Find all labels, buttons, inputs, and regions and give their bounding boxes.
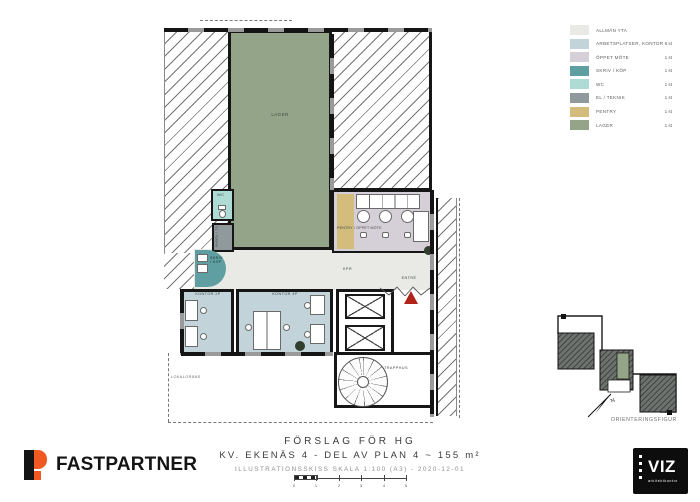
scale-tick-label: 4 [379, 483, 389, 488]
room-lager [228, 30, 332, 250]
wall-east [430, 190, 434, 417]
chair [200, 307, 207, 314]
legend-count: 1 st [665, 123, 672, 128]
fastpartner-p-icon [24, 450, 49, 480]
desk [310, 295, 325, 315]
stool [382, 232, 389, 238]
scale-tick-label: 3 [356, 483, 366, 488]
legend-label: PENTRY [596, 109, 665, 114]
viz-dot [639, 476, 642, 479]
boundary-line-right [459, 198, 460, 418]
legend-count: 1 st [665, 109, 672, 114]
stool [360, 232, 367, 238]
chair [304, 331, 311, 338]
hatched-strip-east [436, 198, 457, 416]
elevator-shaft [345, 325, 385, 351]
viz-subtext: arkitektkontor [648, 479, 678, 483]
scale-tick-label: 5 [401, 483, 411, 488]
drawing-sheet: LAGER PENTRY / ÖPPET MÖTE WC EL / TEKNIK… [0, 0, 700, 502]
legend-row: LAGER 1 st [570, 120, 672, 130]
room-label-lager: LAGER [228, 112, 332, 117]
room-label-kontor-2p: KONTOR 2P [184, 292, 232, 296]
sofa-row [356, 194, 420, 209]
orientation-caption: ORIENTERINGSFIGUR [611, 417, 677, 423]
entrance-arrow-icon [404, 291, 418, 304]
scale-tick [316, 475, 317, 481]
north-arrow-icon [595, 394, 611, 414]
title-line1: FÖRSLAG FÖR HG [0, 436, 700, 447]
fastpartner-wordmark: FASTPARTNER [56, 450, 197, 480]
room-label-trapphus: TRAPPHUS [384, 366, 408, 370]
legend-row: WC 1 st [570, 79, 672, 89]
legend-label: ÖPPET MÖTE [596, 55, 665, 60]
legend-swatch [570, 52, 589, 62]
scale-bar-subdivision [294, 475, 318, 480]
orientation-figure [548, 302, 698, 422]
label-entre: ENTRÉ [392, 276, 426, 280]
legend-label: SKRIV / KÖP [596, 68, 665, 73]
hatched-area-w [164, 253, 194, 289]
viz-dot [639, 469, 642, 472]
legend-label: LAGER [596, 123, 665, 128]
legend-count: 1 st [665, 95, 672, 100]
cafe-table [379, 210, 392, 223]
wall-north [164, 28, 432, 32]
room-label-skriv-kop: SKRIV / KÖP [210, 256, 223, 265]
copier [197, 264, 208, 273]
meeting-table [253, 311, 281, 350]
room-label-pentry-oppet-mote: PENTRY / ÖPPET MÖTE [337, 226, 382, 230]
legend-swatch [570, 79, 589, 89]
legend-count: 6 st [665, 41, 672, 46]
viz-logo: VIZ arkitektkontor [633, 448, 688, 494]
room-label-wc: WC [217, 192, 224, 197]
legend-label: ALLMÄN YTA [596, 28, 672, 33]
desk [310, 324, 325, 344]
chair [245, 324, 252, 331]
legend-row: ÖPPET MÖTE 1 st [570, 52, 672, 62]
viz-wordmark: VIZ [648, 457, 676, 477]
legend-swatch [570, 93, 589, 103]
viz-dot [639, 455, 642, 458]
label-lokalgrans: LOKALGRÄNS [171, 375, 201, 379]
wall-west [180, 289, 184, 355]
room-label-el-teknik: EL / TEKNIK [215, 226, 219, 247]
hatched-area-ne [333, 30, 432, 190]
scale-tick [294, 475, 295, 481]
legend-row: ARBETSPLATSER, KONTOR 6 st [570, 39, 672, 49]
scale-tick-label: 1 [311, 483, 321, 488]
legend-count: 1 st [665, 82, 672, 87]
desk [185, 326, 198, 347]
scale-tick-label: 2 [334, 483, 344, 488]
legend-label: EL / TEKNIK [596, 95, 665, 100]
printer [197, 254, 208, 262]
legend-label: ARBETSPLATSER, KONTOR [596, 41, 665, 46]
legend-label: WC [596, 82, 665, 87]
legend-row: EL / TEKNIK 1 st [570, 93, 672, 103]
scale-tick [339, 475, 340, 481]
scale-tick [406, 475, 407, 481]
room-label-skriv-line2: / KÖP [210, 260, 223, 264]
scale-tick [384, 475, 385, 481]
fastpartner-p-notch [34, 471, 41, 480]
stool [404, 232, 411, 238]
desk [185, 300, 198, 321]
scale-tick [361, 475, 362, 481]
toilet-bowl [219, 210, 226, 218]
fastpartner-p-stem [24, 450, 34, 480]
legend-swatch [570, 25, 589, 35]
legend-row: SKRIV / KÖP 1 st [570, 66, 672, 76]
boundary-line-left [168, 353, 169, 422]
pentry-strip [337, 194, 354, 249]
fastpartner-p-bowl [34, 450, 47, 469]
legend-swatch [570, 107, 589, 117]
chair [304, 302, 311, 309]
corner-sofa [413, 211, 429, 242]
legend-row: PENTRY 1 st [570, 107, 672, 117]
chair [283, 324, 290, 331]
legend-swatch [570, 120, 589, 130]
scale-tick-label: 0 [289, 483, 299, 488]
elevator-shaft [345, 294, 385, 319]
cafe-table [357, 210, 370, 223]
chair [200, 333, 207, 340]
boundary-line-top [200, 20, 292, 21]
legend-count: 1 st [665, 68, 672, 73]
boundary-line-bottom [168, 422, 433, 423]
legend: ALLMÄN YTA ARBETSPLATSER, KONTOR 6 st ÖP… [570, 25, 672, 134]
fastpartner-logo: FASTPARTNER [24, 450, 197, 480]
legend-count: 1 st [665, 55, 672, 60]
legend-swatch [570, 66, 589, 76]
spiral-stair-core [357, 376, 369, 388]
wall-lager-east [330, 34, 334, 190]
viz-dot [639, 462, 642, 465]
label-kpr: KPR [343, 267, 352, 271]
legend-swatch [570, 39, 589, 49]
room-label-kontor-4p: KONTOR 4P [239, 292, 331, 296]
wall-south [181, 352, 333, 356]
legend-row: ALLMÄN YTA [570, 25, 672, 35]
plant [295, 341, 305, 351]
